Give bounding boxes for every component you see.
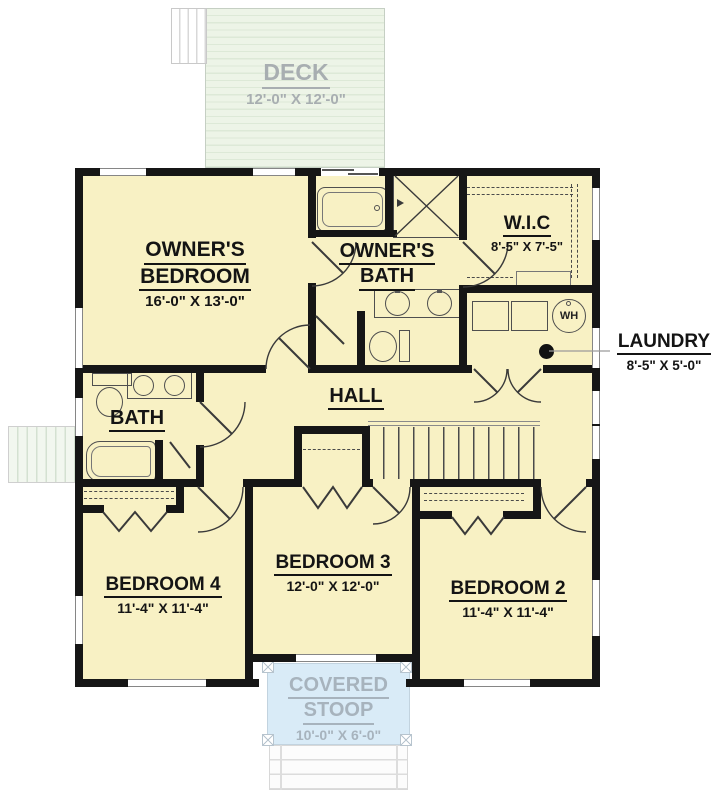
closet-rod-dashed bbox=[577, 184, 578, 278]
deck-name: DECK bbox=[262, 60, 329, 89]
toilet-tank bbox=[92, 373, 132, 386]
bedroom3-label: BEDROOM 3 12'-0" X 12'-0" bbox=[253, 552, 413, 595]
wall-segment bbox=[75, 365, 266, 373]
wall-segment bbox=[503, 511, 541, 519]
bath-label: BATH bbox=[101, 407, 173, 432]
window bbox=[592, 580, 600, 636]
closet-shelf-dashed bbox=[84, 498, 174, 499]
sink bbox=[427, 291, 452, 316]
room-name: LAUNDRY bbox=[617, 331, 711, 355]
window bbox=[296, 654, 376, 662]
wall-segment bbox=[410, 479, 541, 487]
stoop-post bbox=[400, 661, 412, 673]
deck-label: DECK 12'-0" X 12'-0" bbox=[221, 60, 371, 109]
wall-segment bbox=[294, 426, 302, 487]
wall-segment bbox=[83, 505, 104, 513]
stoop-label: COVERED STOOP 10'-0" X 6'-0" bbox=[272, 674, 405, 743]
side-landing bbox=[8, 426, 76, 483]
room-dims: 10'-0" X 6'-0" bbox=[272, 728, 405, 744]
room-dims: 11'-4" X 11'-4" bbox=[83, 601, 243, 617]
step-stringer bbox=[280, 745, 282, 790]
window bbox=[75, 398, 83, 436]
room-dims: 12'-0" X 12'-0" bbox=[253, 579, 413, 595]
shower bbox=[393, 174, 460, 238]
window bbox=[75, 596, 83, 644]
wall-segment bbox=[357, 311, 365, 373]
stoop-post bbox=[262, 661, 274, 673]
room-name: HALL bbox=[328, 385, 383, 410]
stair-treads bbox=[368, 427, 540, 479]
floor-plan: WH bbox=[0, 0, 723, 800]
owners-bath-label: OWNER'S BATH bbox=[322, 240, 452, 291]
closet-shelf-dashed bbox=[84, 491, 174, 492]
stoop-steps bbox=[269, 745, 408, 790]
wall-segment bbox=[459, 168, 467, 240]
window bbox=[592, 426, 600, 459]
laundry-callout: LAUNDRY 8'-5" X 5'-0" bbox=[610, 331, 718, 373]
wic-label: W.I.C 8'-5" X 7'-5" bbox=[477, 213, 577, 255]
wall-segment bbox=[196, 365, 204, 402]
hall-label: HALL bbox=[300, 385, 412, 410]
bathtub bbox=[86, 441, 156, 482]
window bbox=[100, 168, 146, 176]
washer bbox=[472, 301, 509, 331]
closet-shelf-dashed bbox=[467, 194, 573, 195]
wall-segment bbox=[294, 426, 370, 434]
room-name: COVERED bbox=[288, 674, 389, 699]
room-name: OWNER'S bbox=[144, 238, 246, 265]
closet-shelf-dashed bbox=[467, 277, 513, 278]
sink bbox=[385, 291, 410, 316]
slider-panel bbox=[348, 173, 378, 175]
wall-segment bbox=[155, 440, 163, 482]
wall-segment bbox=[459, 285, 600, 293]
wall-segment bbox=[412, 511, 452, 519]
room-name: W.I.C bbox=[503, 213, 551, 237]
deck-stairs bbox=[171, 8, 207, 64]
room-dims: 11'-4" X 11'-4" bbox=[428, 605, 588, 621]
room-dims: 8'-5" X 5'-0" bbox=[610, 358, 718, 373]
room-name: STOOP bbox=[303, 699, 375, 724]
sink bbox=[164, 375, 185, 396]
bedroom4-label: BEDROOM 4 11'-4" X 11'-4" bbox=[83, 574, 243, 617]
room-name: OWNER'S bbox=[339, 240, 436, 265]
window bbox=[592, 328, 600, 368]
deck-dims: 12'-0" X 12'-0" bbox=[221, 92, 371, 109]
wall-segment bbox=[176, 487, 184, 513]
owners-bedroom-label: OWNER'S BEDROOM 16'-0" X 13'-0" bbox=[115, 238, 275, 311]
window bbox=[592, 391, 600, 424]
closet-shelf-dashed bbox=[424, 493, 524, 494]
wall-segment bbox=[308, 168, 316, 238]
wall-segment bbox=[75, 479, 198, 487]
wall-segment bbox=[308, 283, 316, 373]
room-dims: 8'-5" X 7'-5" bbox=[477, 240, 577, 255]
wall-segment bbox=[385, 168, 393, 237]
slider-panel bbox=[322, 169, 354, 171]
water-heater-label: WH bbox=[560, 310, 578, 322]
wall-segment bbox=[586, 479, 600, 487]
window bbox=[592, 188, 600, 240]
wall-segment bbox=[166, 505, 176, 513]
laundry-callout-dot bbox=[539, 344, 554, 359]
bedroom2-label: BEDROOM 2 11'-4" X 11'-4" bbox=[428, 578, 588, 621]
room-name: BATH bbox=[109, 407, 165, 432]
window bbox=[464, 679, 530, 687]
wall-segment bbox=[313, 230, 397, 237]
water-heater-vent bbox=[566, 301, 571, 306]
sink bbox=[133, 375, 154, 396]
wall-segment bbox=[243, 479, 302, 487]
wall-segment bbox=[310, 365, 472, 373]
wall-segment bbox=[362, 479, 373, 487]
room-name: BEDROOM 4 bbox=[104, 574, 221, 598]
window bbox=[253, 168, 295, 176]
sliding-door bbox=[321, 168, 379, 176]
closet-shelf-dashed bbox=[303, 449, 360, 450]
room-name: BATH bbox=[359, 265, 415, 290]
window bbox=[128, 679, 206, 687]
room-name: BEDROOM 2 bbox=[449, 578, 566, 602]
tub-drain bbox=[374, 205, 380, 211]
window bbox=[75, 308, 83, 368]
toilet-tank bbox=[399, 330, 410, 362]
room-name: BEDROOM 3 bbox=[274, 552, 391, 576]
wall-segment bbox=[459, 285, 467, 373]
room-name: BEDROOM bbox=[139, 265, 251, 292]
stair-railing bbox=[368, 421, 540, 426]
closet-shelf-dashed bbox=[467, 187, 573, 188]
dryer bbox=[511, 301, 548, 331]
closet-shelf-dashed bbox=[424, 500, 524, 501]
room-dims: 16'-0" X 13'-0" bbox=[115, 294, 275, 311]
step-stringer bbox=[396, 745, 398, 790]
wall-segment bbox=[362, 426, 370, 487]
wall-segment bbox=[245, 487, 253, 687]
toilet-bowl bbox=[369, 331, 397, 362]
